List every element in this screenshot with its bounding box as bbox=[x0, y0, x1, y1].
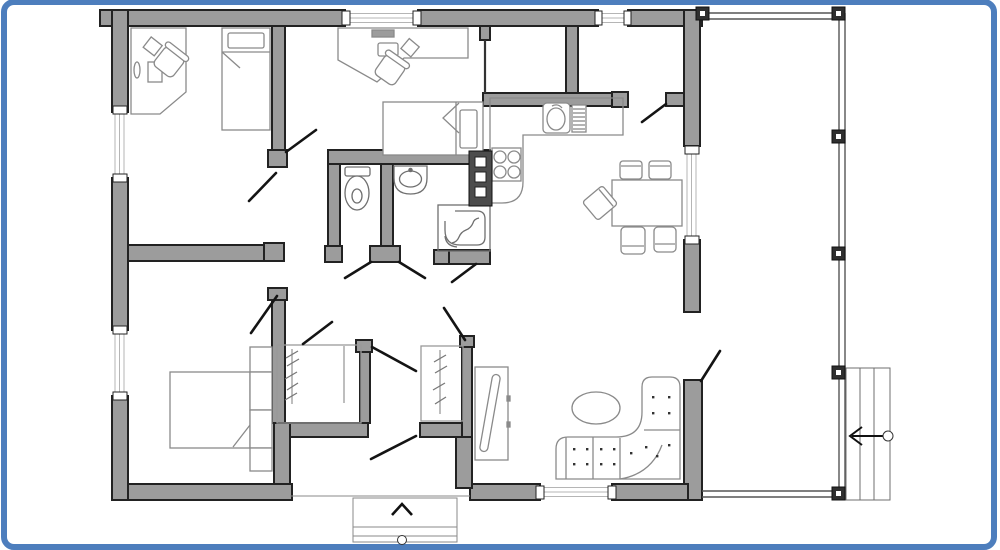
dining-chair bbox=[649, 161, 671, 179]
dining-table bbox=[612, 180, 682, 226]
dining-chair bbox=[620, 161, 642, 179]
wall-entry-jog-right bbox=[456, 435, 472, 488]
window-right bbox=[685, 146, 699, 244]
wall-cap bbox=[434, 250, 449, 264]
double-bed bbox=[170, 347, 272, 471]
wall-cap bbox=[264, 243, 284, 261]
tv-sideboard bbox=[475, 367, 510, 460]
wall-entry-top-left bbox=[290, 423, 368, 437]
room1-single-bed bbox=[222, 28, 270, 130]
wall-right-mid bbox=[684, 240, 700, 312]
wardrobe-left bbox=[277, 345, 361, 423]
shower-hose-icon bbox=[452, 218, 479, 243]
wall-kitchen-top-stub bbox=[666, 93, 684, 106]
deck-steps bbox=[846, 368, 893, 500]
window-bottom bbox=[536, 486, 616, 499]
wall-top-left bbox=[100, 10, 345, 26]
door-wc bbox=[345, 262, 371, 278]
railing-posts bbox=[696, 7, 845, 500]
wall-right-lower bbox=[684, 380, 702, 500]
wall-left-upper bbox=[112, 10, 128, 112]
wall-left-mid bbox=[112, 178, 128, 330]
nightstand-column bbox=[250, 347, 272, 471]
draining-board bbox=[572, 105, 586, 132]
deck-railing bbox=[702, 13, 845, 497]
wall-room1-bottom bbox=[128, 245, 280, 261]
washbasin-fixture bbox=[394, 166, 427, 194]
wall-right-upper bbox=[684, 10, 700, 146]
corner-sofa bbox=[556, 377, 680, 479]
wall-cap bbox=[356, 340, 372, 352]
wall-bottom-living bbox=[470, 484, 540, 500]
railing-post bbox=[832, 487, 845, 500]
mouse-icon bbox=[134, 62, 140, 78]
wall-stub-top bbox=[480, 26, 490, 40]
window-left-upper bbox=[113, 106, 127, 182]
railing-post bbox=[696, 7, 709, 20]
pillow bbox=[228, 33, 264, 48]
door-storage-dining bbox=[642, 104, 666, 122]
walkline-start-circle bbox=[883, 431, 893, 441]
shelf-icon bbox=[372, 30, 394, 37]
pillow bbox=[460, 110, 477, 148]
door-hall-living-b bbox=[444, 308, 465, 340]
stove bbox=[492, 148, 521, 181]
wall-bedroom-sw-right bbox=[272, 290, 285, 423]
door-bedroom-office bbox=[249, 173, 276, 201]
door-living-deck bbox=[701, 351, 720, 381]
door-hall-entry bbox=[372, 347, 416, 371]
door-hall-living-a bbox=[452, 264, 476, 282]
floor-plan-svg bbox=[0, 0, 1000, 550]
dining-set bbox=[582, 161, 682, 254]
wall-cap bbox=[268, 288, 287, 300]
walkline-start-circle bbox=[398, 536, 407, 545]
wall-bottom-right bbox=[612, 484, 688, 500]
wall-cap bbox=[325, 246, 342, 262]
window-top bbox=[342, 11, 421, 25]
door-front-entrance bbox=[371, 436, 416, 459]
door-bedroom-n bbox=[286, 130, 316, 152]
shower-cabin bbox=[438, 205, 490, 251]
wall-top-mid bbox=[418, 10, 598, 26]
door-wardrobe-left bbox=[303, 322, 332, 344]
window-left-lower bbox=[113, 326, 127, 400]
toilet-fixture bbox=[345, 167, 370, 210]
water-heater-unit bbox=[469, 151, 492, 206]
wall-cap bbox=[612, 92, 628, 107]
wall-cap bbox=[370, 246, 400, 262]
coffee-table bbox=[572, 392, 620, 424]
room2-desk bbox=[338, 28, 468, 82]
wardrobe-right bbox=[421, 346, 463, 421]
window-top-small bbox=[595, 11, 631, 25]
room2-single-bed bbox=[383, 102, 483, 155]
railing-post bbox=[832, 247, 845, 260]
wall-cap bbox=[268, 150, 287, 167]
railing-post bbox=[832, 366, 845, 379]
door-bathroom bbox=[399, 262, 425, 278]
dining-chair bbox=[621, 227, 645, 254]
wall-room1-room2-divider bbox=[272, 26, 285, 152]
railing-post bbox=[832, 7, 845, 20]
floor-plan-screenshot bbox=[0, 0, 1000, 550]
dining-chair bbox=[654, 227, 676, 252]
wall-left-lower bbox=[112, 396, 128, 500]
entry-steps bbox=[290, 496, 470, 545]
wall-wc-bath-divider bbox=[381, 164, 393, 248]
railing-post bbox=[832, 130, 845, 143]
wall-bottom-left bbox=[112, 484, 292, 500]
wall-wc-left bbox=[328, 164, 340, 250]
wall-storage-divider bbox=[566, 26, 578, 93]
